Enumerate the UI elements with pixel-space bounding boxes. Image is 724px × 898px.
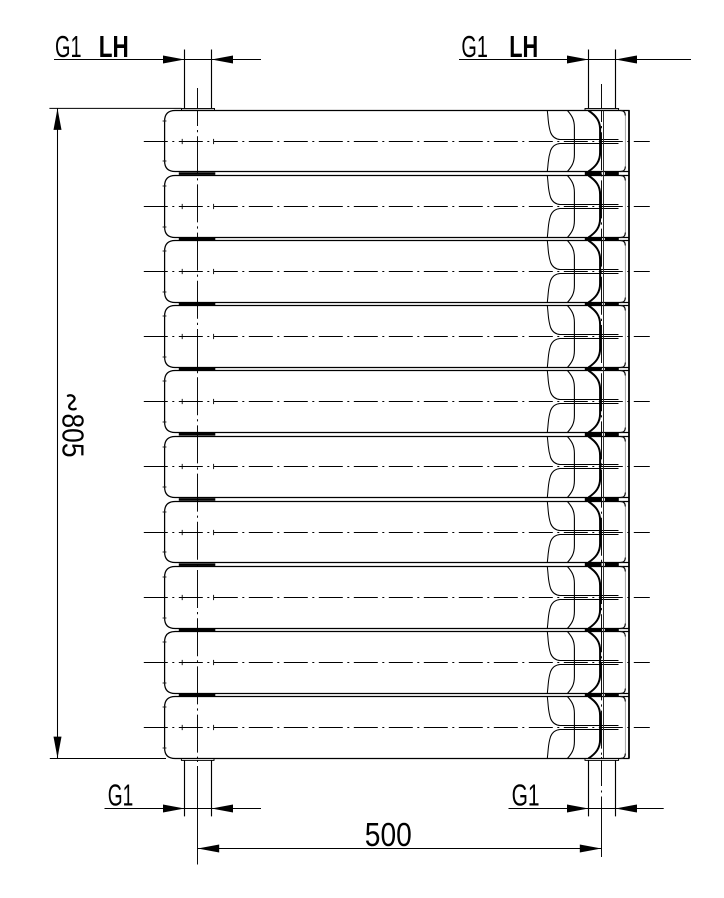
svg-text:G1: G1 <box>108 778 134 813</box>
svg-text:LH: LH <box>99 29 129 64</box>
svg-text:G1: G1 <box>55 29 82 64</box>
svg-text:G1: G1 <box>461 29 488 64</box>
svg-text:LH: LH <box>509 29 538 64</box>
svg-text:805: 805 <box>55 414 89 458</box>
svg-text:500: 500 <box>365 817 412 854</box>
svg-text:G1: G1 <box>512 778 540 813</box>
